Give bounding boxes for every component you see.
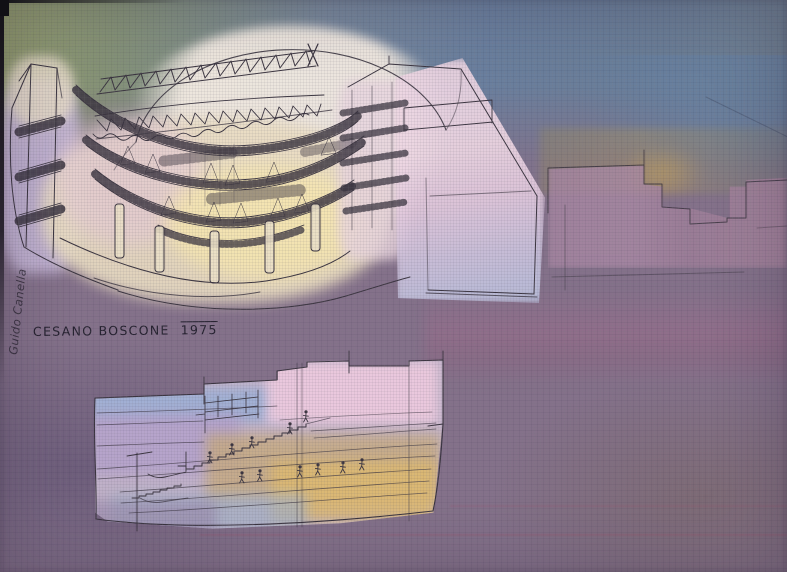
roof-truss-upper [97,44,318,94]
zigzag-truss [100,51,310,92]
caption-location: CESANO BOSCONE [33,323,170,339]
right-volume [348,56,537,297]
scan-edge-top [0,0,185,3]
ink-drawing [0,0,787,572]
roof-truss-lower [93,95,332,141]
caption: CESANO BOSCONE1975 [33,322,218,339]
service-tower [343,82,406,230]
sketch-canvas: CESANO BOSCONE1975 Guido Canella [0,0,787,572]
skyline-steps [548,150,787,290]
main-perspective-sketch [10,44,461,309]
section-outline [94,351,443,525]
section-figures [207,410,364,483]
scan-edge-corner [0,0,9,16]
section-sketch [94,351,443,531]
section-stair-lower [132,484,188,503]
caption-year: 1975 [181,322,218,337]
section-verticals [127,363,409,531]
base-lines [60,238,410,309]
scan-edge-left [0,0,4,385]
section-grid-detail [196,390,259,433]
scratch-line [706,97,787,137]
section-datum-lines [97,406,437,513]
dome-outline [114,50,461,170]
